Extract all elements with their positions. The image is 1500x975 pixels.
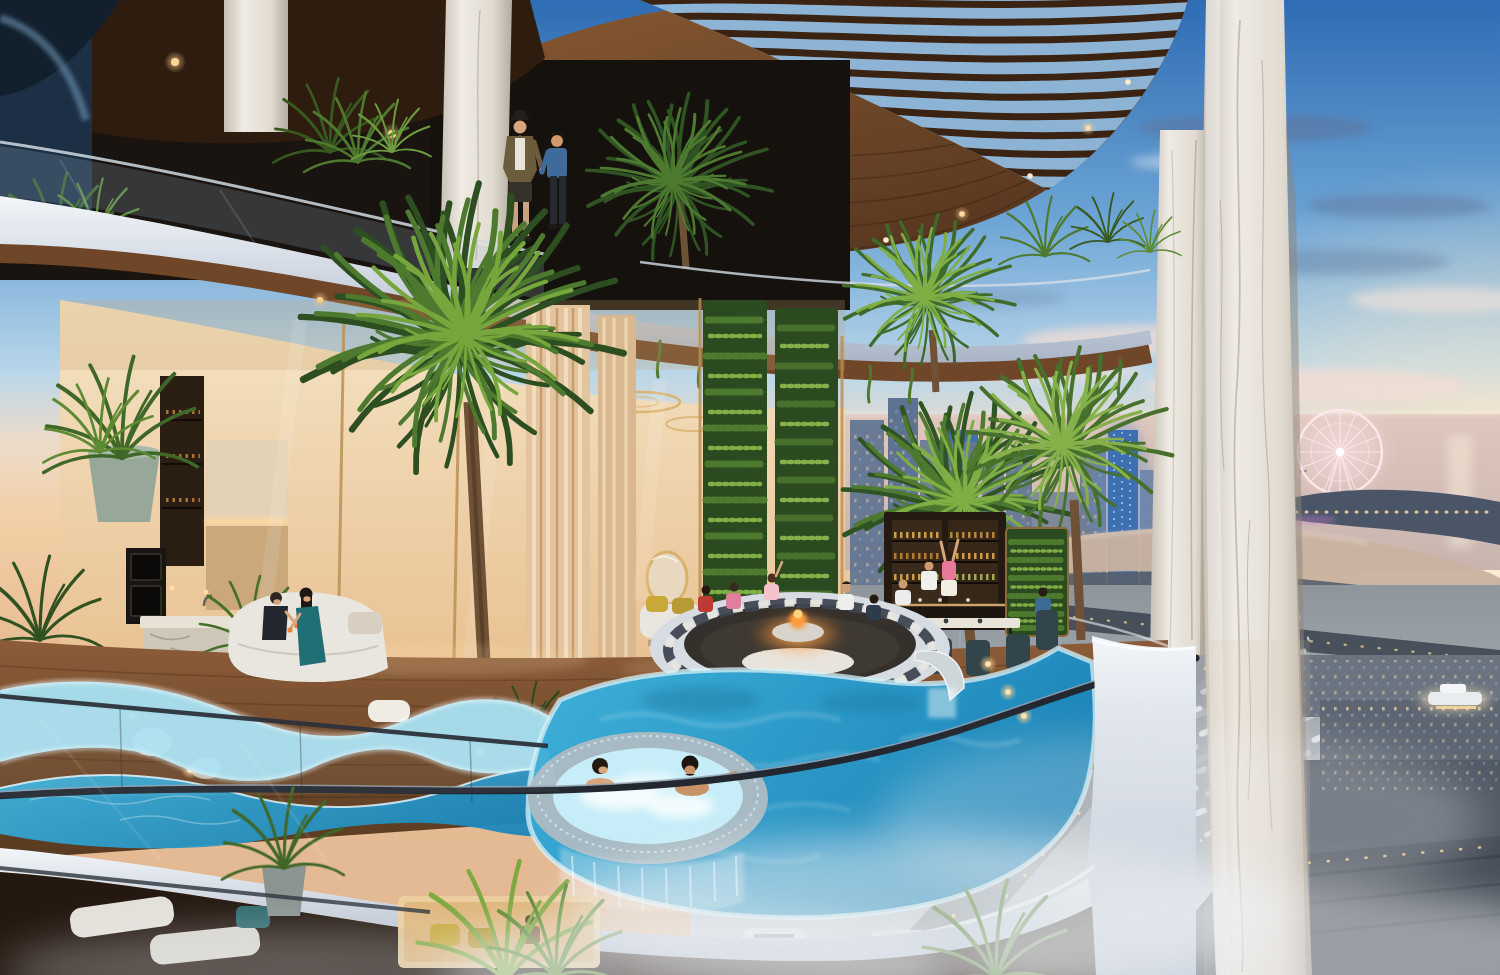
penthouse-render: Luxury high-rise penthouse terrace with …: [0, 0, 1500, 975]
upper-column-small: [224, 0, 288, 132]
scene-canvas: Luxury high-rise penthouse terrace with …: [0, 0, 1500, 975]
